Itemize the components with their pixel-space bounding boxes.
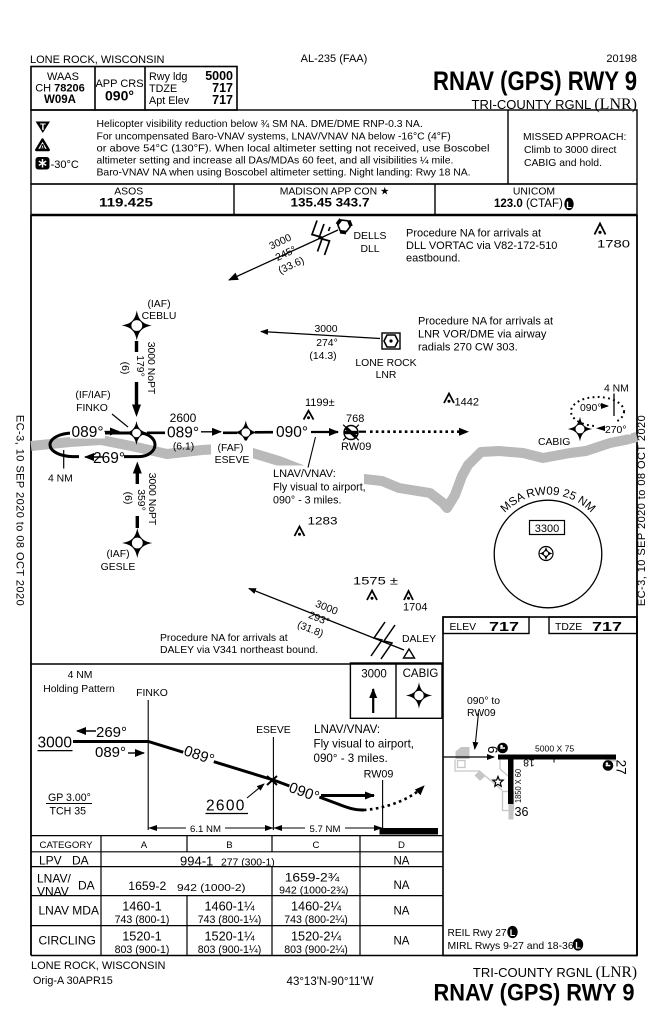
- svg-text:135.45 343.7: 135.45 343.7: [291, 198, 370, 210]
- svg-text:DA: DA: [72, 854, 89, 868]
- svg-text:(6): (6): [119, 362, 130, 375]
- svg-text:36: 36: [515, 805, 529, 819]
- svg-text:743 (800-1¼): 743 (800-1¼): [198, 914, 262, 926]
- svg-text:NA: NA: [394, 856, 410, 868]
- svg-text:LONE ROCK: LONE ROCK: [355, 358, 416, 369]
- svg-text:CH 78206: CH 78206: [35, 83, 85, 95]
- svg-text:RW09: RW09: [341, 441, 371, 453]
- svg-text:1520-2¼: 1520-2¼: [291, 930, 342, 944]
- svg-text:1283: 1283: [308, 516, 338, 528]
- svg-text:B: B: [226, 840, 232, 851]
- svg-text:MIRL Rwys 9-27 and 18-36: MIRL Rwys 9-27 and 18-36: [448, 941, 574, 952]
- svg-text:MISSED APPROACH:: MISSED APPROACH:: [523, 132, 626, 143]
- svg-text:4 NM: 4 NM: [68, 670, 93, 681]
- svg-text:090° - 3 miles.: 090° - 3 miles.: [273, 495, 341, 507]
- svg-text:TDZE: TDZE: [555, 622, 582, 633]
- svg-text:717: 717: [592, 619, 622, 634]
- svg-text:DLL VORTAC via V82-172-510: DLL VORTAC via V82-172-510: [406, 240, 557, 252]
- svg-text:717: 717: [212, 93, 233, 107]
- svg-text:3000: 3000: [361, 669, 387, 681]
- svg-text:CEBLU: CEBLU: [142, 311, 177, 322]
- svg-text:Procedure NA for arrivals at: Procedure NA for arrivals at: [160, 633, 288, 644]
- svg-text:CABIG: CABIG: [538, 437, 570, 448]
- svg-text:RNAV (GPS) RWY 9: RNAV (GPS) RWY 9: [433, 66, 637, 96]
- svg-text:CATEGORY: CATEGORY: [40, 840, 94, 851]
- svg-text:(FAF): (FAF): [218, 443, 244, 454]
- svg-text:Rwy ldg: Rwy ldg: [149, 71, 187, 83]
- svg-text:090° - 3 miles.: 090° - 3 miles.: [314, 752, 388, 765]
- svg-text:LONE ROCK, WISCONSIN: LONE ROCK, WISCONSIN: [31, 960, 166, 972]
- svg-text:4 NM: 4 NM: [604, 384, 629, 395]
- svg-text:1659-2¾: 1659-2¾: [285, 871, 340, 885]
- svg-text:EC-3, 10 SEP 2020 to 08 OCT: EC-3, 10 SEP 2020 to 08 OCT 2020: [14, 415, 26, 606]
- svg-text:LNAV/VNAV:: LNAV/VNAV:: [314, 723, 380, 736]
- svg-text:269°: 269°: [96, 724, 127, 741]
- svg-text:LNR: LNR: [376, 370, 397, 381]
- svg-text:119.425: 119.425: [99, 198, 154, 210]
- svg-text:DLL: DLL: [360, 244, 379, 255]
- svg-text:1659-2: 1659-2: [128, 879, 166, 893]
- svg-text:D: D: [398, 840, 405, 851]
- svg-text:269°: 269°: [93, 450, 125, 467]
- svg-text:5000 X 75: 5000 X 75: [535, 744, 574, 754]
- svg-text:994-1: 994-1: [180, 854, 213, 869]
- svg-text:1199±: 1199±: [305, 397, 335, 409]
- svg-text:NA: NA: [394, 936, 410, 948]
- svg-text:5.7 NM: 5.7 NM: [310, 824, 341, 835]
- svg-text:ESEVE: ESEVE: [256, 725, 291, 736]
- svg-text:1460-1: 1460-1: [122, 900, 162, 914]
- svg-text:A: A: [141, 840, 148, 851]
- svg-text:274°: 274°: [316, 338, 338, 349]
- svg-text:ELEV: ELEV: [450, 622, 477, 633]
- svg-text:LONE ROCK, WISCONSIN: LONE ROCK, WISCONSIN: [30, 54, 165, 66]
- svg-text:For uncompensated Baro-VNAV sy: For uncompensated Baro-VNAV systems, LNA…: [97, 132, 451, 143]
- svg-text:ESEVE: ESEVE: [215, 455, 250, 466]
- svg-text:(6.1): (6.1): [173, 442, 194, 453]
- svg-text:090°: 090°: [276, 424, 308, 441]
- svg-text:FINKO: FINKO: [76, 403, 108, 414]
- svg-text:743 (800-1): 743 (800-1): [115, 914, 170, 926]
- svg-text:3000: 3000: [314, 324, 337, 335]
- svg-text:RNAV (GPS) RWY 9: RNAV (GPS) RWY 9: [434, 980, 635, 1007]
- svg-text:1442: 1442: [455, 397, 479, 409]
- svg-text:27: 27: [614, 760, 629, 775]
- svg-text:WAAS: WAAS: [47, 71, 79, 83]
- svg-text:radials 270 CW 303.: radials 270 CW 303.: [418, 342, 518, 354]
- svg-text:1850 X 60: 1850 X 60: [513, 769, 523, 803]
- svg-text:768: 768: [346, 413, 364, 425]
- svg-text:L: L: [566, 200, 572, 210]
- svg-text:T: T: [40, 122, 46, 133]
- svg-text:UNICOM: UNICOM: [513, 187, 555, 198]
- svg-text:942 (1000-2¾): 942 (1000-2¾): [279, 886, 348, 897]
- svg-text:A: A: [40, 142, 46, 152]
- svg-text:C: C: [313, 840, 320, 851]
- svg-text:LNAV MDA: LNAV MDA: [39, 904, 99, 918]
- svg-text:NA: NA: [394, 880, 410, 892]
- svg-text:CABIG: CABIG: [403, 668, 439, 680]
- svg-text:089°: 089°: [72, 424, 104, 441]
- svg-text:Holding Pattern: Holding Pattern: [43, 684, 115, 695]
- svg-text:EC-3, 10 SEP 2020 to 08 OCT: EC-3, 10 SEP 2020 to 08 OCT 2020: [636, 415, 648, 606]
- svg-text:DELLS: DELLS: [354, 231, 387, 242]
- svg-text:743 (800-2¼): 743 (800-2¼): [284, 914, 348, 926]
- svg-text:REIL Rwy 27: REIL Rwy 27: [448, 928, 507, 939]
- svg-text:AL-235 (FAA): AL-235 (FAA): [301, 53, 368, 65]
- svg-text:LPV: LPV: [39, 854, 62, 868]
- svg-text:GESLE: GESLE: [101, 562, 136, 573]
- svg-text:090°: 090°: [580, 403, 602, 414]
- svg-text:3000: 3000: [38, 735, 73, 752]
- svg-text:1520-1¼: 1520-1¼: [204, 930, 255, 944]
- svg-text:MADISON APP CON ★: MADISON APP CON ★: [280, 187, 390, 198]
- svg-text:43°13'N-90°11'W: 43°13'N-90°11'W: [287, 976, 374, 988]
- svg-text:L: L: [575, 940, 581, 950]
- svg-text:(IAF): (IAF): [106, 549, 129, 560]
- svg-text:1520-1: 1520-1: [122, 930, 162, 944]
- svg-text:2600: 2600: [170, 411, 197, 425]
- svg-text:(IF/IAF): (IF/IAF): [75, 390, 110, 401]
- svg-text:1460-1¼: 1460-1¼: [204, 900, 255, 914]
- svg-text:3000 NoPT: 3000 NoPT: [146, 473, 157, 526]
- svg-text:089°: 089°: [167, 425, 199, 442]
- svg-text:18: 18: [523, 757, 535, 769]
- svg-text:(IAF): (IAF): [147, 299, 170, 310]
- svg-text:L: L: [510, 928, 516, 938]
- svg-text:803 (900-1): 803 (900-1): [115, 944, 170, 956]
- svg-text:GP 3.00°: GP 3.00°: [48, 792, 91, 804]
- svg-text:(6): (6): [122, 492, 133, 505]
- svg-text:RW09: RW09: [467, 708, 496, 719]
- svg-text:Climb to 3000 direct: Climb to 3000 direct: [524, 145, 617, 156]
- svg-text:1575 ±: 1575 ±: [353, 576, 398, 588]
- svg-text:090°: 090°: [105, 88, 134, 104]
- svg-text:CIRCLING: CIRCLING: [39, 934, 96, 948]
- svg-text:359°: 359°: [135, 489, 146, 511]
- svg-text:Fly visual to airport,: Fly visual to airport,: [273, 481, 366, 493]
- svg-text:803 (900-1¼): 803 (900-1¼): [198, 944, 262, 956]
- svg-text:RW09: RW09: [364, 769, 394, 781]
- svg-text:TCH 35: TCH 35: [50, 806, 87, 818]
- svg-text:DALEY: DALEY: [402, 634, 436, 645]
- svg-text:1460-2¼: 1460-2¼: [291, 900, 342, 914]
- svg-text:LNAV/: LNAV/: [37, 872, 71, 886]
- svg-text:DALEY via V341 northeast bound: DALEY via V341 northeast bound.: [160, 645, 318, 656]
- svg-text:Procedure NA for arrivals at: Procedure NA for arrivals at: [418, 316, 553, 328]
- svg-text:Procedure NA for arrivals at: Procedure NA for arrivals at: [406, 228, 541, 240]
- svg-text:(14.3): (14.3): [309, 351, 336, 362]
- svg-text:Apt Elev: Apt Elev: [149, 95, 190, 107]
- svg-text:LNAV/VNAV:: LNAV/VNAV:: [273, 468, 336, 480]
- svg-text:942 (1000-2): 942 (1000-2): [177, 883, 246, 894]
- svg-text:20198: 20198: [606, 53, 637, 65]
- svg-text:TDZE: TDZE: [149, 83, 177, 95]
- svg-text:FINKO: FINKO: [136, 688, 168, 699]
- svg-text:DA: DA: [78, 879, 95, 893]
- svg-text:1780: 1780: [597, 239, 630, 251]
- svg-text:277 (300-1): 277 (300-1): [221, 858, 275, 869]
- svg-text:Orig-A 30APR15: Orig-A 30APR15: [33, 975, 113, 987]
- svg-text:W09A: W09A: [44, 94, 76, 106]
- svg-text:3000 NoPT: 3000 NoPT: [145, 342, 156, 395]
- svg-text:Fly visual to airport,: Fly visual to airport,: [314, 738, 415, 751]
- svg-text:270°: 270°: [605, 425, 627, 436]
- svg-text:803 (900-2¼): 803 (900-2¼): [284, 944, 348, 956]
- svg-text:4 NM: 4 NM: [48, 474, 73, 485]
- svg-text:eastbound.: eastbound.: [406, 253, 460, 265]
- svg-text:Baro-VNAV NA when using Boscob: Baro-VNAV NA when using Boscobel altimet…: [97, 168, 471, 179]
- svg-text:ASOS: ASOS: [114, 187, 143, 198]
- svg-text:6.1 NM: 6.1 NM: [190, 824, 221, 835]
- svg-text:179°: 179°: [134, 355, 145, 377]
- svg-text:-30°C: -30°C: [51, 159, 79, 171]
- svg-text:NA: NA: [394, 906, 410, 918]
- svg-text:TRI-COUNTY RGNL (LNR): TRI-COUNTY RGNL (LNR): [473, 964, 637, 981]
- svg-text:123.0 (CTAF): 123.0 (CTAF): [494, 198, 563, 210]
- svg-text:or above 54°C (130°F). When lo: or above 54°C (130°F). When local altime…: [97, 144, 490, 155]
- svg-text:CABIG and hold.: CABIG and hold.: [524, 158, 602, 169]
- svg-text:VNAV: VNAV: [37, 885, 69, 899]
- svg-text:2600: 2600: [206, 798, 246, 815]
- svg-text:089°: 089°: [95, 744, 126, 761]
- svg-text:altimeter setting and increase: altimeter setting and increase all DAs/M…: [97, 155, 454, 167]
- svg-text:LNR VOR/DME via airway: LNR VOR/DME via airway: [418, 329, 547, 341]
- svg-text:Helicopter visibility reductio: Helicopter visibility reduction below ¾ …: [97, 119, 423, 130]
- svg-text:3300: 3300: [535, 523, 559, 535]
- svg-text:090° to: 090° to: [467, 696, 500, 707]
- svg-text:1704: 1704: [403, 602, 427, 614]
- svg-text:717: 717: [489, 619, 519, 634]
